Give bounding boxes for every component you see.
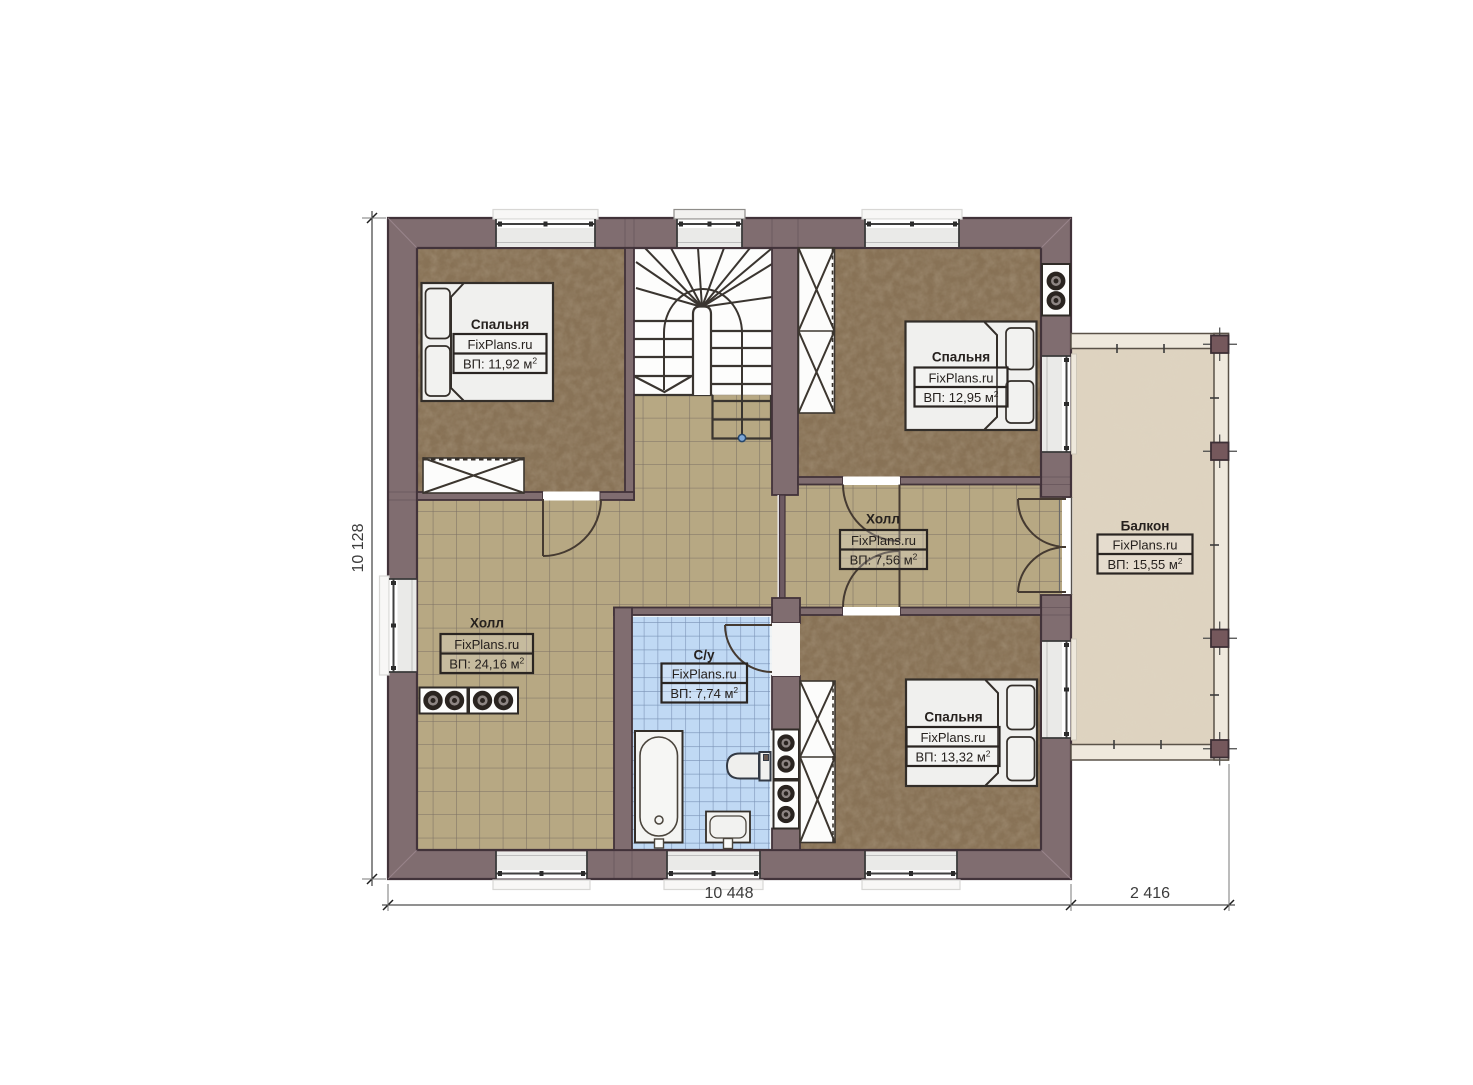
svg-text:Холл: Холл bbox=[470, 616, 504, 631]
svg-text:2 416: 2 416 bbox=[1130, 885, 1170, 902]
svg-text:Спальня: Спальня bbox=[924, 710, 982, 725]
svg-text:FixPlans.ru: FixPlans.ru bbox=[851, 533, 916, 548]
svg-text:ВП: 15,55 м2: ВП: 15,55 м2 bbox=[1107, 556, 1182, 572]
svg-text:FixPlans.ru: FixPlans.ru bbox=[928, 371, 993, 386]
svg-text:ВП: 7,74 м2: ВП: 7,74 м2 bbox=[670, 685, 738, 701]
svg-text:10 448: 10 448 bbox=[705, 885, 754, 902]
svg-text:ВП: 24,16 м2: ВП: 24,16 м2 bbox=[449, 655, 524, 671]
svg-text:Спальня: Спальня bbox=[932, 350, 990, 365]
svg-text:Холл: Холл bbox=[866, 512, 900, 527]
svg-text:С/у: С/у bbox=[693, 648, 715, 663]
svg-text:ВП: 7,56 м2: ВП: 7,56 м2 bbox=[850, 551, 918, 567]
svg-text:FixPlans.ru: FixPlans.ru bbox=[672, 667, 737, 682]
svg-text:Балкон: Балкон bbox=[1121, 519, 1170, 534]
svg-text:FixPlans.ru: FixPlans.ru bbox=[1112, 538, 1177, 553]
svg-text:Спальня: Спальня bbox=[471, 317, 529, 332]
svg-text:FixPlans.ru: FixPlans.ru bbox=[454, 637, 519, 652]
svg-text:ВП: 11,92 м2: ВП: 11,92 м2 bbox=[463, 355, 537, 371]
svg-text:ВП: 12,95 м2: ВП: 12,95 м2 bbox=[923, 389, 998, 405]
svg-text:ВП: 13,32 м2: ВП: 13,32 м2 bbox=[915, 748, 990, 764]
svg-text:10 128: 10 128 bbox=[350, 523, 367, 572]
svg-text:FixPlans.ru: FixPlans.ru bbox=[467, 337, 532, 352]
svg-text:FixPlans.ru: FixPlans.ru bbox=[920, 730, 985, 745]
